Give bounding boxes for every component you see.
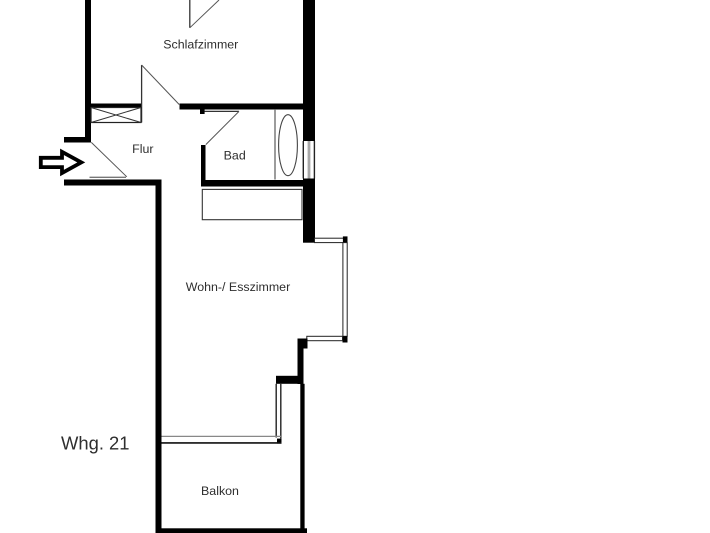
svg-text:Wohn-/ Esszimmer: Wohn-/ Esszimmer [186, 280, 290, 294]
svg-text:Whg. 21: Whg. 21 [61, 432, 130, 453]
svg-text:Balkon: Balkon [201, 484, 239, 498]
svg-text:Bad: Bad [224, 148, 246, 162]
svg-text:Flur: Flur [132, 142, 153, 156]
svg-text:Schlafzimmer: Schlafzimmer [163, 38, 238, 52]
